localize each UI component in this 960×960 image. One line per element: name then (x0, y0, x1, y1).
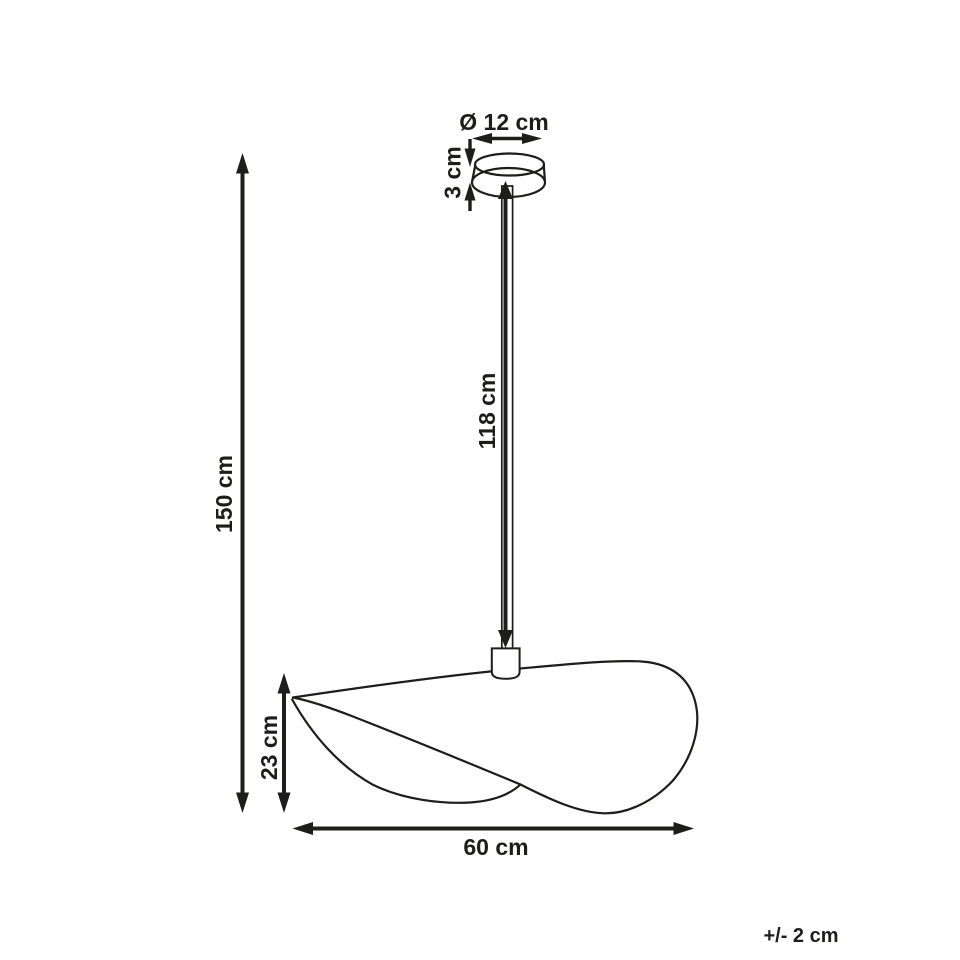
socket-body (492, 648, 520, 678)
total-height-arrow-bottom (236, 793, 249, 814)
shade-width-arrow-right (674, 822, 695, 835)
pendant-lamp-drawing: 118 cm 150 cm 23 cm 60 cm Ø (0, 0, 960, 960)
shade-height-arrow-top (278, 673, 291, 694)
dimension-diagram: 118 cm 150 cm 23 cm 60 cm Ø (0, 0, 960, 960)
shade-front-petal-edge (292, 700, 520, 803)
canopy-right-wall (544, 166, 545, 181)
cord-length-label: 118 cm (474, 373, 500, 450)
socket (492, 648, 520, 678)
total-height-label: 150 cm (211, 455, 237, 533)
shade-width-arrow-left (293, 822, 314, 835)
canopy-diameter-dimension: Ø 12 cm (459, 109, 549, 144)
shade-width-dimension: 60 cm (293, 822, 695, 860)
tolerance-note: +/- 2 cm (763, 925, 838, 947)
canopy-height-arrow-down (465, 149, 476, 168)
shade-outer-edge (293, 661, 697, 813)
total-height-dimension: 150 cm (211, 153, 249, 813)
shade-height-arrow-bottom (278, 793, 291, 814)
shade-height-label: 23 cm (256, 715, 282, 780)
shade-width-label: 60 cm (463, 834, 528, 860)
canopy-height-arrow-up (465, 183, 476, 201)
canopy-height-label: 3 cm (440, 146, 466, 198)
canopy-diameter-label: Ø 12 cm (459, 109, 549, 135)
canopy-height-dimension: 3 cm (440, 139, 476, 211)
shade-height-dimension: 23 cm (256, 673, 291, 813)
shade-fold-edge (293, 698, 521, 785)
cord-length-dimension: 118 cm (474, 181, 513, 648)
lamp-shade (292, 661, 697, 813)
total-height-arrow-top (236, 153, 249, 174)
